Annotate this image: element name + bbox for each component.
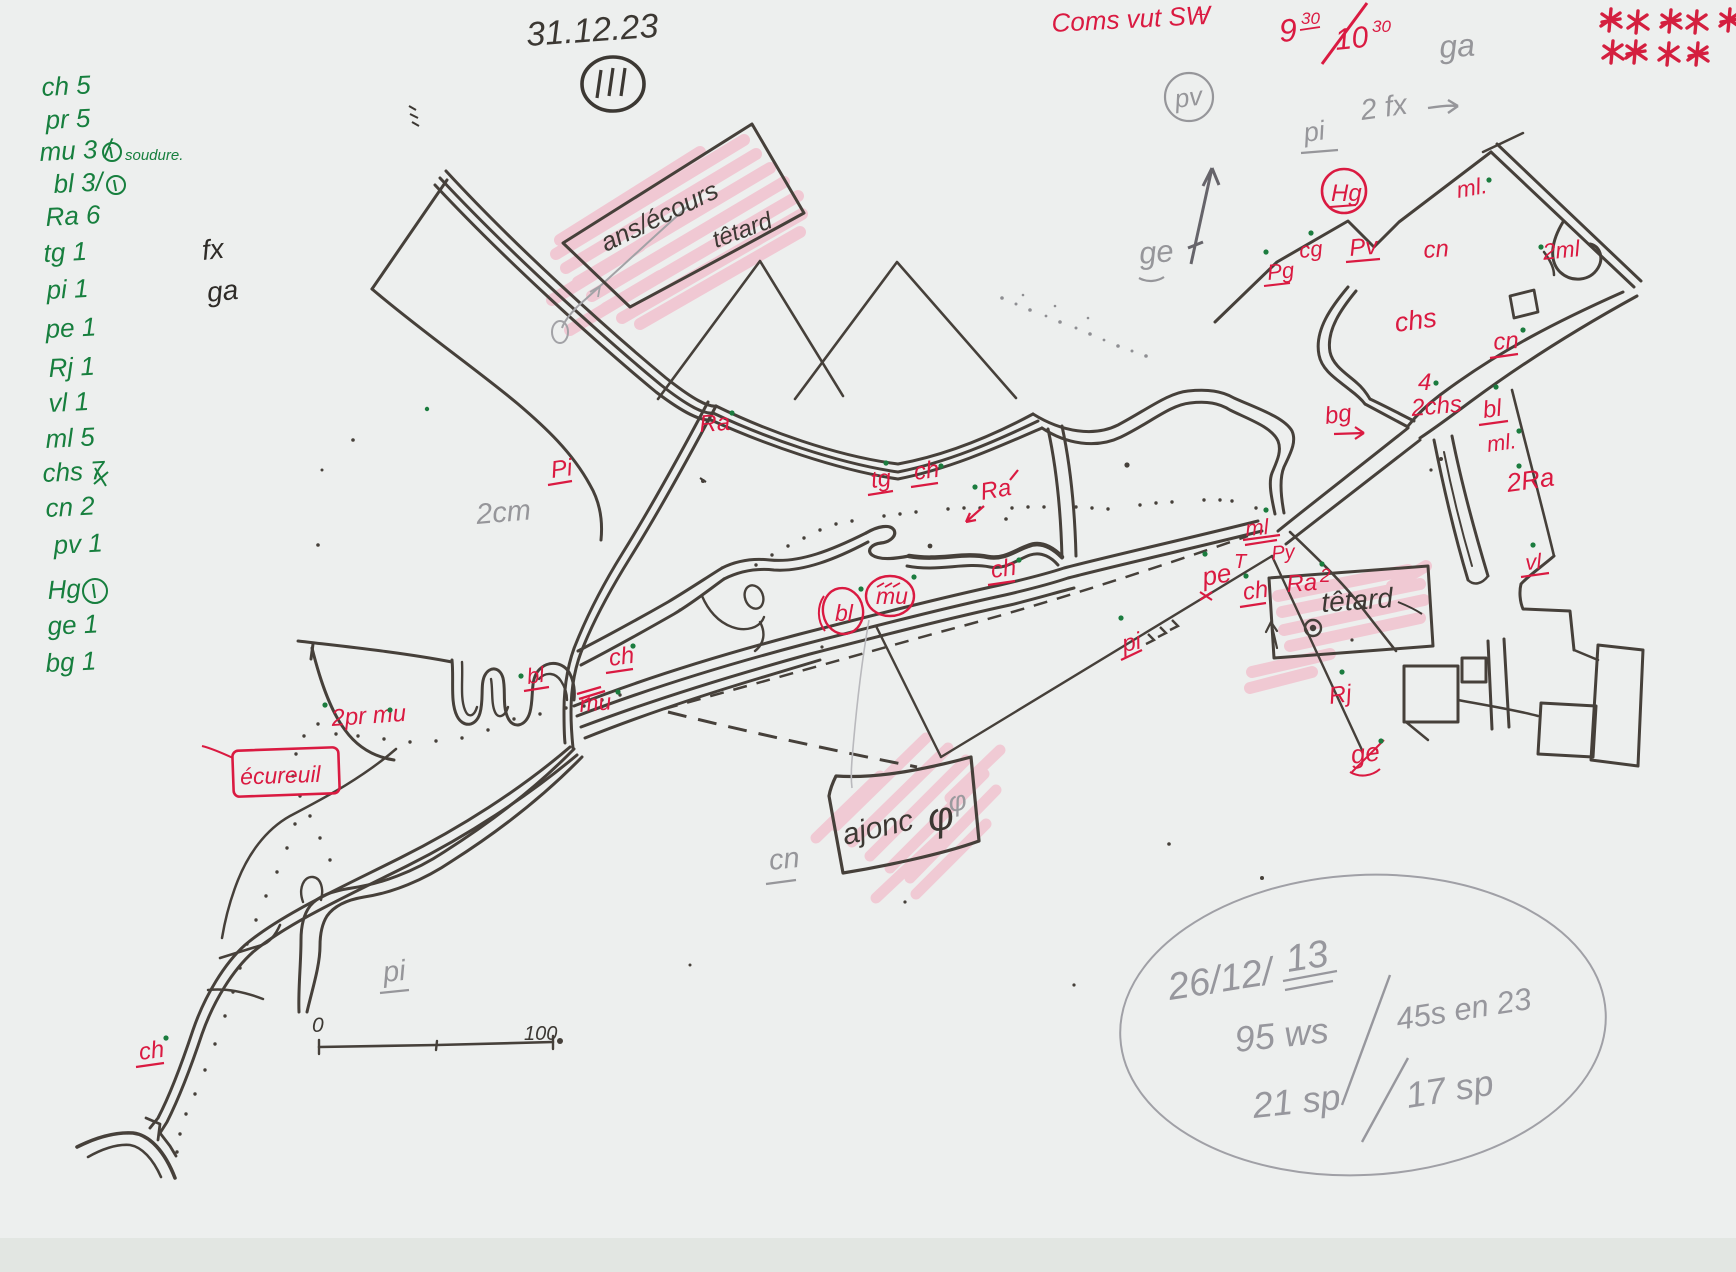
svg-text:Py: Py [1271, 541, 1297, 565]
svg-text:bl 3/: bl 3/ [53, 166, 106, 199]
svg-text:mu: mu [876, 583, 908, 609]
svg-text:2 fx: 2 fx [1358, 89, 1411, 128]
svg-text:cn: cn [1492, 327, 1520, 356]
svg-text:30: 30 [1301, 9, 1320, 28]
svg-text:chs: chs [1393, 302, 1439, 338]
svg-text:ch: ch [1241, 576, 1270, 606]
svg-text:pr 5: pr 5 [44, 103, 92, 135]
svg-text:cn: cn [767, 842, 801, 877]
svg-text:Pi: Pi [549, 454, 575, 484]
svg-text:vl 1: vl 1 [48, 386, 90, 418]
svg-text:têtard: têtard [1320, 582, 1395, 618]
svg-text:2chs: 2chs [1409, 391, 1463, 422]
svg-text:ch: ch [912, 456, 941, 486]
svg-text:Pg: Pg [1266, 257, 1296, 285]
svg-text:4: 4 [1418, 369, 1431, 396]
svg-text:cn 2: cn 2 [45, 490, 96, 523]
svg-text:ge 1: ge 1 [47, 608, 99, 641]
svg-text:0: 0 [312, 1014, 324, 1037]
svg-text:+: + [1196, 5, 1206, 24]
svg-text:cn: cn [1423, 235, 1450, 264]
svg-text:9: 9 [1277, 12, 1298, 49]
svg-text:ml.: ml. [1454, 172, 1489, 203]
svg-text:100: 100 [524, 1023, 557, 1045]
svg-text:Pv: Pv [1348, 232, 1380, 262]
svg-text:bl: bl [835, 600, 854, 626]
svg-text:30: 30 [1372, 17, 1391, 36]
svg-text:tg 1: tg 1 [43, 236, 88, 268]
svg-text:Rj 1: Rj 1 [48, 351, 96, 383]
svg-text:T: T [1234, 551, 1248, 573]
svg-text:Hg: Hg [1331, 180, 1362, 207]
svg-text:fx: fx [200, 233, 226, 266]
svg-text:pv 1: pv 1 [52, 527, 104, 560]
svg-text:pe 1: pe 1 [44, 311, 97, 344]
svg-text:écureuil: écureuil [240, 761, 322, 790]
svg-text:ga: ga [205, 274, 239, 308]
svg-text:Ra: Ra [699, 409, 731, 438]
svg-text:2pr mu: 2pr mu [330, 700, 407, 732]
svg-text:pi 1: pi 1 [45, 273, 89, 305]
svg-text:10: 10 [1333, 21, 1370, 57]
svg-text:Ra 6: Ra 6 [45, 199, 102, 232]
svg-text:Ra: Ra [1286, 569, 1318, 598]
svg-text:bg: bg [1323, 399, 1354, 430]
svg-text:cg: cg [1298, 236, 1324, 263]
svg-text:Rj: Rj [1327, 680, 1354, 710]
svg-text:ge: ge [1138, 233, 1175, 271]
svg-text:2: 2 [1319, 566, 1331, 587]
svg-text:ml 5: ml 5 [45, 421, 96, 454]
svg-text:ga: ga [1438, 27, 1476, 65]
svg-text:soudure.: soudure. [125, 147, 183, 164]
svg-text:ch: ch [137, 1036, 166, 1066]
svg-text:Ra: Ra [978, 474, 1013, 506]
svg-text:2ml: 2ml [1540, 235, 1581, 265]
svg-text:pe: pe [1199, 557, 1234, 592]
svg-text:ch 5: ch 5 [41, 69, 92, 102]
svg-text:ml.: ml. [1485, 428, 1518, 457]
svg-text:ge: ge [1349, 736, 1382, 770]
svg-text:Hg: Hg [47, 573, 82, 605]
svg-text:2cm: 2cm [474, 494, 532, 531]
svg-text:ch: ch [989, 554, 1018, 584]
svg-text:bg 1: bg 1 [45, 645, 97, 678]
